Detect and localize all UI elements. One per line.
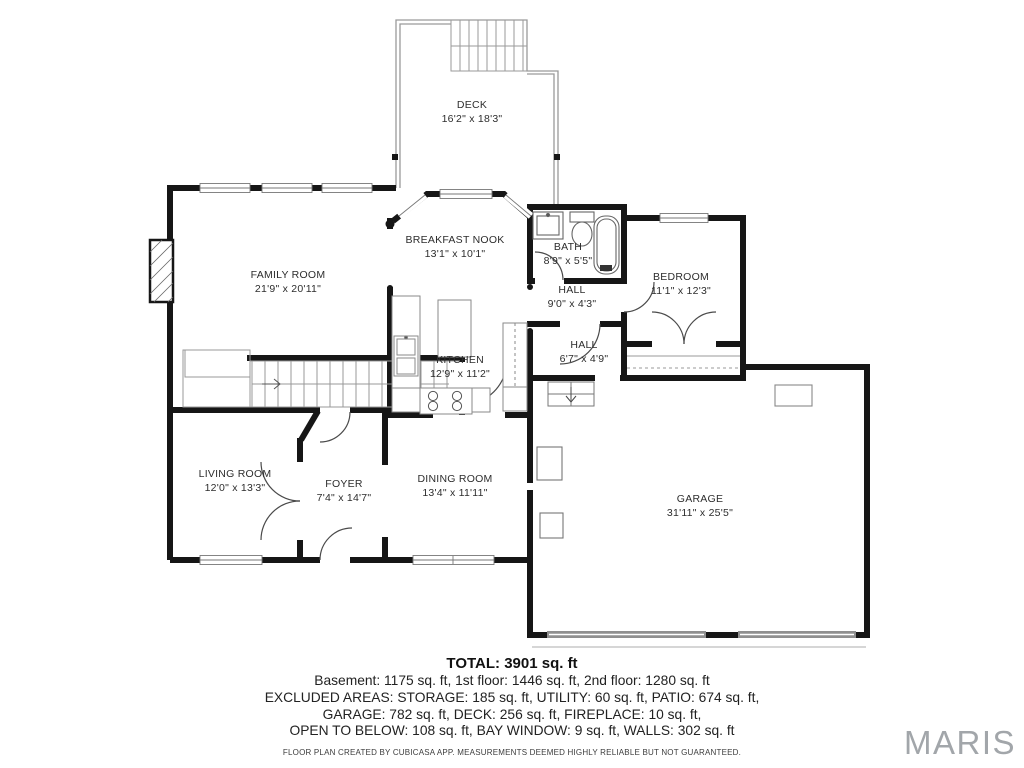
- room-label-garage: GARAGE 31'11" x 25'5": [667, 493, 733, 520]
- room-name: HALL: [560, 339, 609, 353]
- maris-logo: MARIS: [904, 724, 1016, 762]
- room-label-bedroom: BEDROOM 11'1" x 12'3": [651, 271, 711, 298]
- total-area: TOTAL: 3901 sq. ft: [62, 655, 962, 673]
- room-label-family-room: FAMILY ROOM 21'9" x 20'11": [251, 269, 326, 296]
- room-name: DINING ROOM: [417, 473, 492, 487]
- excluded-areas-3: OPEN TO BELOW: 108 sq. ft, BAY WINDOW: 9…: [62, 723, 962, 740]
- room-dims: 13'1" x 10'1": [406, 248, 505, 262]
- garage-doors: [532, 631, 866, 647]
- basement-stairs: [548, 382, 594, 406]
- room-dims: 13'4" x 11'11": [417, 487, 492, 501]
- room-dims: 9'0" x 4'3": [548, 298, 597, 312]
- deck-stairs: [451, 20, 527, 71]
- deck-posts: [392, 154, 560, 160]
- room-dims: 8'9" x 5'5": [544, 255, 593, 269]
- room-dims: 11'1" x 12'3": [651, 285, 711, 299]
- floor-plan-drawing: [0, 0, 1024, 768]
- room-label-bath: BATH 8'9" x 5'5": [544, 241, 593, 268]
- room-label-hall-upper: HALL 9'0" x 4'3": [548, 284, 597, 311]
- garage-fixtures: [537, 447, 563, 538]
- room-dims: 21'9" x 20'11": [251, 283, 326, 297]
- area-summary: TOTAL: 3901 sq. ft Basement: 1175 sq. ft…: [62, 655, 962, 758]
- room-name: DECK: [442, 99, 503, 113]
- room-dims: 6'7" x 4'9": [560, 353, 609, 367]
- excluded-areas-2: GARAGE: 782 sq. ft, DECK: 256 sq. ft, FI…: [62, 707, 962, 724]
- room-dims: 12'9" x 11'2": [430, 368, 490, 382]
- room-name: LIVING ROOM: [199, 468, 272, 482]
- disclaimer-text: FLOOR PLAN CREATED BY CUBICASA APP. MEAS…: [62, 748, 962, 758]
- room-label-kitchen: KITCHEN 12'9" x 11'2": [430, 354, 490, 381]
- room-dims: 31'11" x 25'5": [667, 507, 733, 521]
- room-name: BATH: [544, 241, 593, 255]
- room-name: GARAGE: [667, 493, 733, 507]
- room-label-breakfast-nook: BREAKFAST NOOK 13'1" x 10'1": [406, 234, 505, 261]
- room-label-foyer: FOYER 7'4" x 14'7": [317, 478, 372, 505]
- excluded-areas-1: EXCLUDED AREAS: STORAGE: 185 sq. ft, UTI…: [62, 690, 962, 707]
- room-label-dining-room: DINING ROOM 13'4" x 11'11": [417, 473, 492, 500]
- floor-areas: Basement: 1175 sq. ft, 1st floor: 1446 s…: [62, 673, 962, 690]
- room-label-living-room: LIVING ROOM 12'0" x 13'3": [199, 468, 272, 495]
- room-name: FOYER: [317, 478, 372, 492]
- room-name: KITCHEN: [430, 354, 490, 368]
- room-label-hall-lower: HALL 6'7" x 4'9": [560, 339, 609, 366]
- room-dims: 12'0" x 13'3": [199, 482, 272, 496]
- room-label-deck: DECK 16'2" x 18'3": [442, 99, 503, 126]
- floor-plan-page: DECK 16'2" x 18'3" BREAKFAST NOOK 13'1" …: [0, 0, 1024, 768]
- room-name: BREAKFAST NOOK: [406, 234, 505, 248]
- room-name: BEDROOM: [651, 271, 711, 285]
- fireplace: [150, 240, 173, 302]
- bedroom-closet: [627, 356, 740, 368]
- room-name: HALL: [548, 284, 597, 298]
- room-dims: 16'2" x 18'3": [442, 113, 503, 127]
- room-name: FAMILY ROOM: [251, 269, 326, 283]
- room-dims: 7'4" x 14'7": [317, 492, 372, 506]
